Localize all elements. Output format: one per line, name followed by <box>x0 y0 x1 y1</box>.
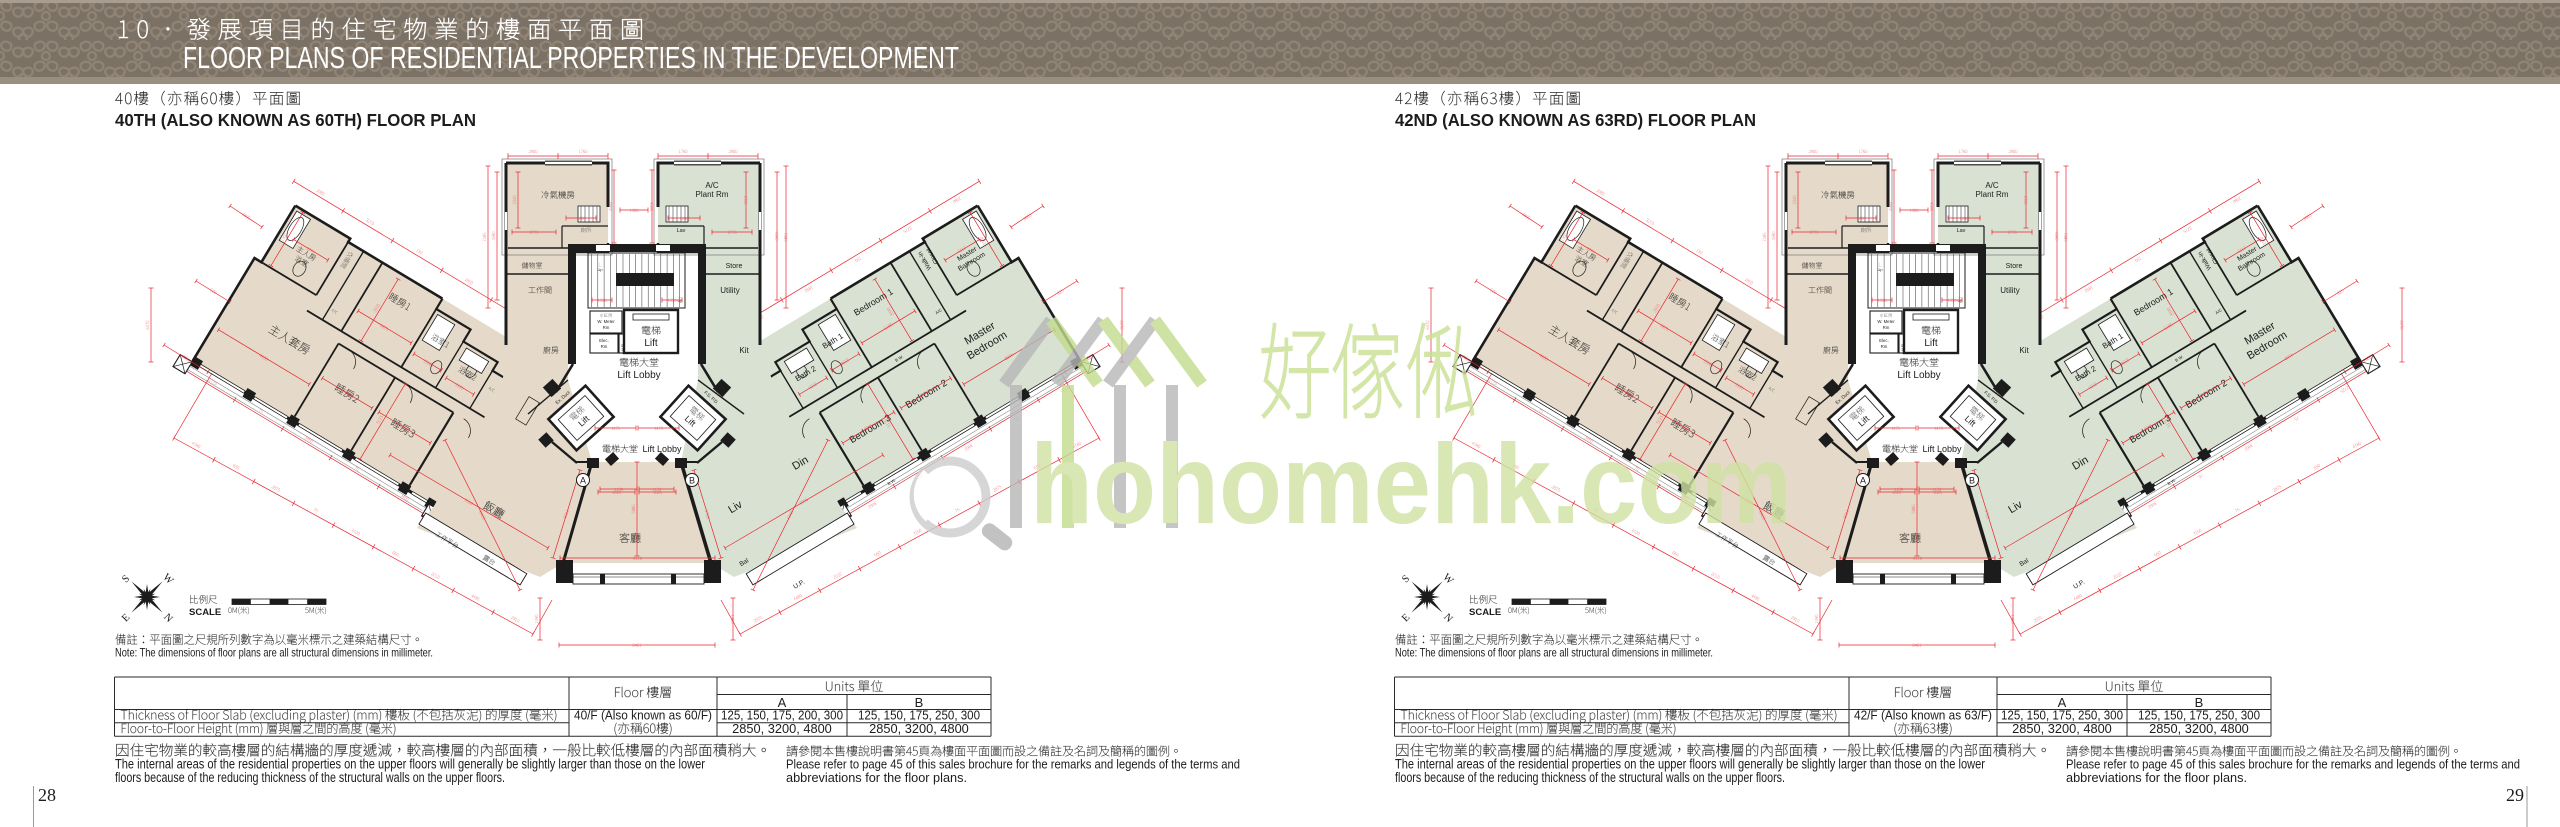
svg-text:Kit: Kit <box>2019 346 2029 355</box>
svg-text:A: A <box>580 476 586 486</box>
svg-text:A: A <box>1860 476 1866 486</box>
svg-text:U.P.: U.P. <box>792 579 806 591</box>
svg-text:Lift Lobby: Lift Lobby <box>642 444 682 454</box>
svg-text:Plant Rm: Plant Rm <box>1976 190 2009 199</box>
svg-text:B.W.: B.W. <box>887 477 897 486</box>
svg-text:Lift Lobby: Lift Lobby <box>1897 370 1940 381</box>
svg-text:SCALE: SCALE <box>189 607 221 618</box>
svg-text:Store: Store <box>2006 263 2023 270</box>
svg-text:Lift: Lift <box>1924 338 1938 349</box>
svg-text:Lift Lobby: Lift Lobby <box>617 370 660 381</box>
svg-text:U.P.: U.P. <box>2072 579 2086 591</box>
svg-text:Up: Up <box>677 298 683 303</box>
svg-text:2850, 3200, 4800: 2850, 3200, 4800 <box>2149 721 2249 736</box>
svg-text:E: E <box>120 612 132 624</box>
svg-text:abbreviations for the floor pl: abbreviations for the floor plans. <box>2066 770 2247 785</box>
svg-text:E: E <box>1400 612 1412 624</box>
svg-text:floors because of the reducing: floors because of the reducing thickness… <box>1395 770 1785 785</box>
svg-text:N: N <box>1441 612 1454 625</box>
svg-text:B: B <box>1969 476 1975 486</box>
svg-text:Rm: Rm <box>601 344 608 349</box>
svg-text:2850, 3200, 4800: 2850, 3200, 4800 <box>869 721 969 736</box>
svg-text:40TH (ALSO KNOWN AS 60TH) FLOO: 40TH (ALSO KNOWN AS 60TH) FLOOR PLAN <box>115 110 476 130</box>
svg-text:W: W <box>160 572 175 587</box>
svg-text:28: 28 <box>38 785 56 805</box>
svg-text:40/F (Also known as 60/F): 40/F (Also known as 60/F) <box>574 708 712 723</box>
svg-text:A/C: A/C <box>705 181 719 190</box>
svg-text:SCALE: SCALE <box>1469 607 1501 618</box>
svg-text:Store: Store <box>726 263 743 270</box>
svg-text:Rm: Rm <box>1881 344 1888 349</box>
svg-text:Elec.: Elec. <box>599 338 609 343</box>
svg-text:S: S <box>1400 573 1412 585</box>
svg-text:S: S <box>120 573 132 585</box>
svg-text:W. Meter: W. Meter <box>597 319 615 324</box>
svg-text:B: B <box>689 476 695 486</box>
svg-text:2850, 3200, 4800: 2850, 3200, 4800 <box>2012 721 2112 736</box>
svg-text:Up: Up <box>1877 267 1883 272</box>
svg-text:Lift: Lift <box>644 338 658 349</box>
svg-text:Utility: Utility <box>2000 286 2020 295</box>
svg-text:W. Meter: W. Meter <box>1877 319 1895 324</box>
svg-text:Plant Rm: Plant Rm <box>696 190 729 199</box>
svg-text:Rm: Rm <box>603 325 610 330</box>
svg-text:A/C: A/C <box>1985 181 1999 190</box>
svg-text:29: 29 <box>2506 785 2524 805</box>
svg-text:Lav: Lav <box>1957 228 1966 234</box>
svg-text:W: W <box>1440 572 1455 587</box>
svg-text:Kit: Kit <box>739 346 749 355</box>
svg-text:Rm: Rm <box>1883 325 1890 330</box>
svg-text:42ND (ALSO KNOWN AS 63RD) FLOO: 42ND (ALSO KNOWN AS 63RD) FLOOR PLAN <box>1395 110 1756 130</box>
svg-text:Lift Lobby: Lift Lobby <box>1922 444 1962 454</box>
svg-text:Note: The dimensions of floo: Note: The dimensions of floor plans are … <box>1395 646 1713 660</box>
svg-text:floors because of the reducing: floors because of the reducing thickness… <box>115 770 505 785</box>
svg-text:FLOOR PLANS OF RESIDENTIAL PRO: FLOOR PLANS OF RESIDENTIAL PROPERTIES IN… <box>183 41 959 75</box>
svg-text:Note: The dimensions of floo: Note: The dimensions of floor plans are … <box>115 646 433 660</box>
svg-text:B.W.: B.W. <box>2167 477 2177 486</box>
svg-text:42/F (Also known as 63/F): 42/F (Also known as 63/F) <box>1854 708 1992 723</box>
svg-text:abbreviations for the floor pl: abbreviations for the floor plans. <box>786 770 967 785</box>
svg-text:Up: Up <box>597 267 603 272</box>
svg-text:N: N <box>161 612 174 625</box>
svg-text:2850, 3200, 4800: 2850, 3200, 4800 <box>732 721 832 736</box>
svg-text:Lav: Lav <box>677 228 686 234</box>
svg-text:Utility: Utility <box>720 286 740 295</box>
svg-text:Up: Up <box>1957 298 1963 303</box>
svg-text:Elec.: Elec. <box>1879 338 1889 343</box>
svg-text:hohomehk.com: hohomehk.com <box>1030 421 1792 547</box>
